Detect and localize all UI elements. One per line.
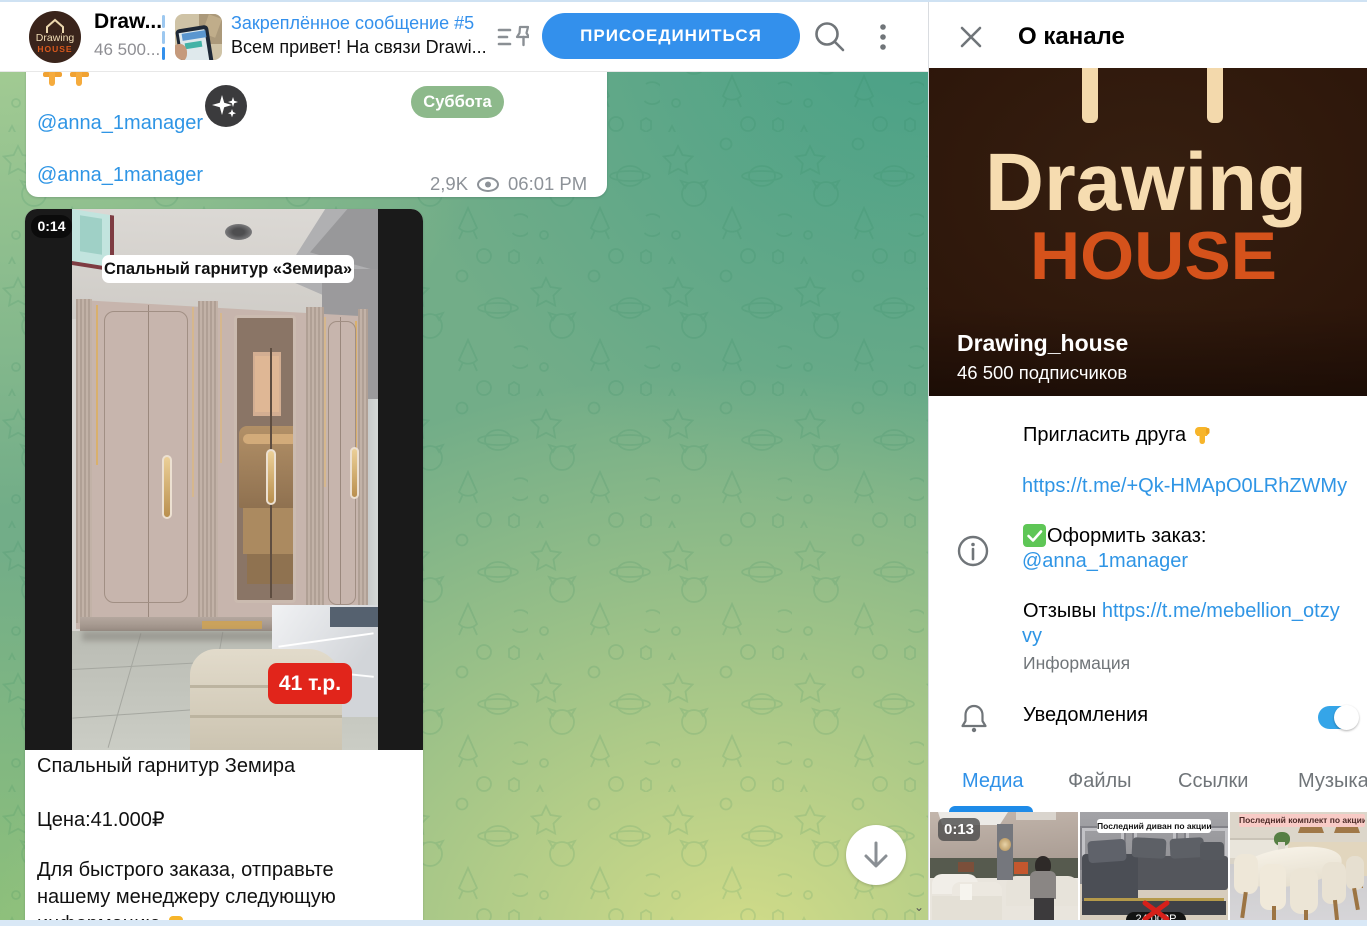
svg-text:Drawing: Drawing [985,137,1307,228]
svg-text:HOUSE: HOUSE [1030,218,1277,292]
svg-text:HOUSE: HOUSE [37,44,72,54]
svg-text:Drawing: Drawing [36,32,75,44]
